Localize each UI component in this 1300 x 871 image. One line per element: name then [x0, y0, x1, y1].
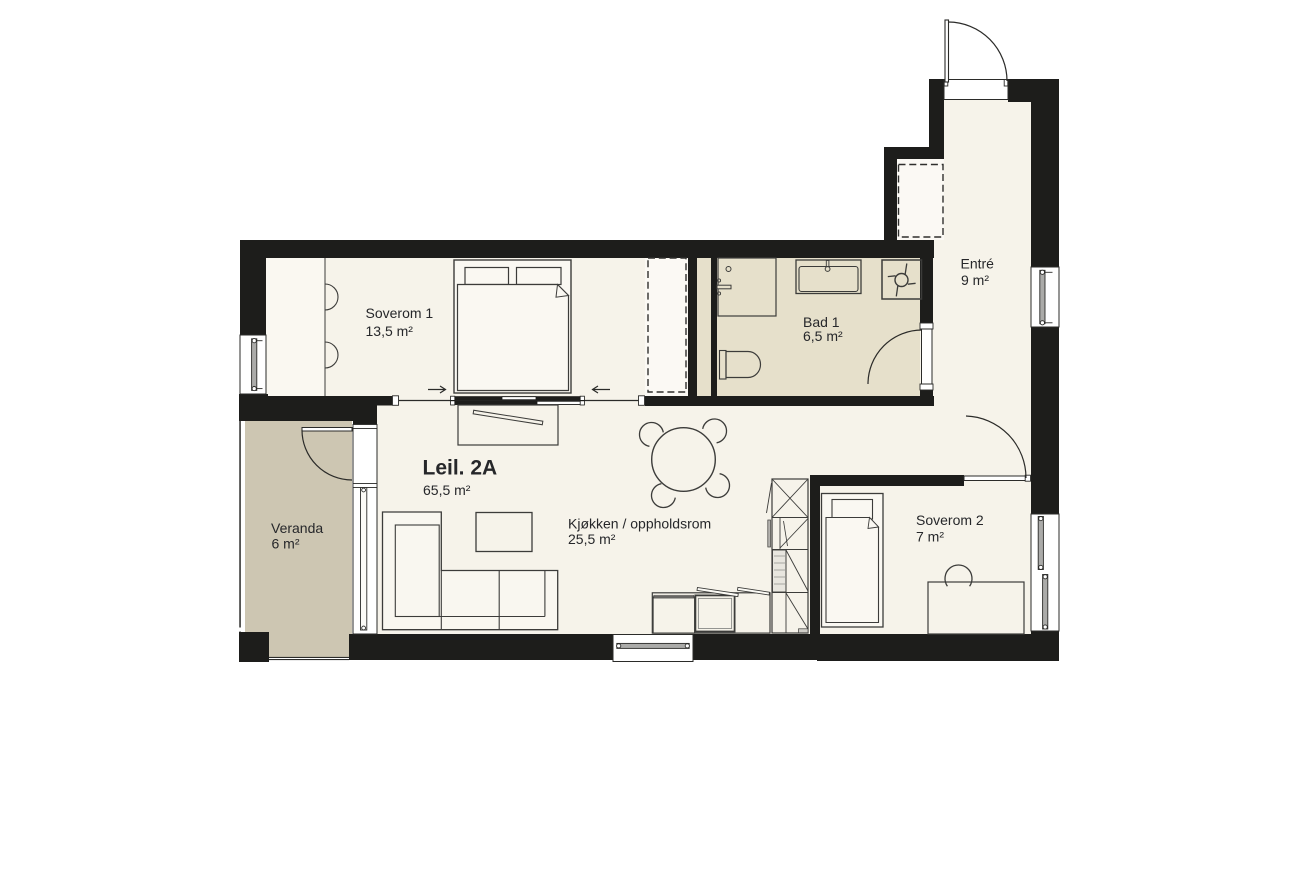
svg-text:6,5 m²: 6,5 m²: [803, 328, 843, 344]
svg-text:6 m²: 6 m²: [272, 536, 300, 552]
svg-text:9 m²: 9 m²: [961, 272, 989, 288]
svg-text:65,5 m²: 65,5 m²: [423, 482, 471, 498]
svg-text:13,5 m²: 13,5 m²: [366, 323, 414, 339]
svg-text:7 m²: 7 m²: [916, 528, 944, 544]
svg-text:Entré: Entré: [961, 255, 995, 271]
svg-text:Soverom 2: Soverom 2: [916, 512, 984, 528]
svg-text:Kjøkken / oppholdsrom: Kjøkken / oppholdsrom: [568, 516, 711, 532]
svg-text:Veranda: Veranda: [271, 520, 323, 536]
svg-text:Soverom 1: Soverom 1: [366, 305, 434, 321]
svg-text:25,5 m²: 25,5 m²: [568, 531, 616, 547]
svg-text:Leil. 2A: Leil. 2A: [423, 457, 498, 480]
